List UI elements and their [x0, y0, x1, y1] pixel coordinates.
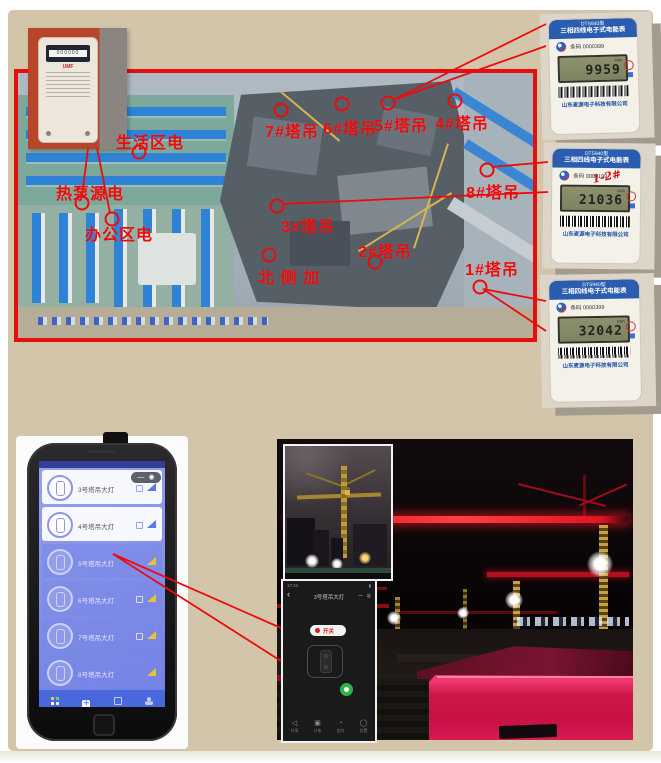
floodlight — [505, 591, 523, 609]
lcd-reading: 21036 — [579, 193, 623, 208]
annotation-crane-8: 8#塔吊 — [466, 179, 520, 203]
inset-crane-photo — [283, 444, 393, 581]
signal-icon — [147, 520, 156, 528]
lcd-reading: 32042 — [579, 324, 623, 340]
toolbar-timer[interactable]: ◔ 定时 — [329, 719, 352, 739]
wall-meter: 000000 UMF — [38, 37, 98, 143]
lamp-socket-icon — [47, 475, 73, 501]
lamp-socket-icon — [47, 549, 73, 575]
settings-icon: ◯ — [352, 719, 375, 728]
energy-meter: DTS940型 三相四线电子式电能表 条码 0000199 1-2# kWh 2… — [550, 148, 641, 265]
grid-icon — [51, 697, 59, 705]
meter-serial: 条码 0000399 — [570, 42, 604, 51]
phone-home-button[interactable] — [93, 714, 115, 736]
brand-logo-icon — [556, 42, 566, 52]
power-toggle-button[interactable]: 开关 — [310, 625, 346, 636]
marker-crane-5 — [381, 96, 396, 111]
toolbar-label: 计电 — [306, 728, 329, 733]
battery-icon — [136, 596, 143, 603]
confirm-button[interactable] — [340, 683, 353, 696]
wall-meter-photo: 000000 UMF — [28, 28, 127, 149]
structure-edge-highlight — [437, 676, 633, 678]
device-card-label: 8号塔吊大灯 — [78, 669, 114, 679]
minimize-icon[interactable]: — — [358, 593, 363, 599]
power-toggle-label: 开关 — [323, 627, 334, 635]
meter-icon: ▣ — [306, 719, 329, 728]
marker-crane-2 — [368, 255, 383, 270]
device-card-label: 7号塔吊大灯 — [78, 632, 114, 642]
battery-icon — [136, 522, 143, 529]
lcd-display: kWh 9959 — [557, 54, 628, 83]
phone-status-bar — [39, 461, 165, 468]
annotation-crane-3: 3#塔吊 — [281, 213, 335, 237]
seal-icon — [626, 321, 636, 331]
power-dot-icon — [315, 628, 320, 633]
meter-spec-text — [46, 72, 90, 98]
marker-office-area — [105, 212, 120, 227]
toolbar-label: 设置 — [352, 728, 375, 733]
annotation-crane-2: 2#塔吊 — [358, 238, 412, 262]
meter-header: DTS940型 三相四线电子式电能表 — [549, 18, 637, 39]
annotation-office-area-power: 办公区电 — [85, 221, 153, 245]
device-card-4[interactable]: 6号塔吊大灯 — [42, 581, 162, 615]
annotation-crane-5: 5#塔吊 — [374, 112, 428, 136]
device-card-6[interactable]: 8号塔吊大灯 — [42, 655, 162, 689]
energy-meter: DTS940型 三相四线电子式电能表 条码 0000399 kWh 9959 山… — [547, 17, 640, 135]
plus-icon: ＋ — [82, 700, 90, 707]
screw — [46, 131, 51, 136]
marker-living-area — [132, 145, 147, 160]
switch-panel-outline — [307, 645, 343, 678]
brand-logo-icon — [559, 171, 569, 181]
manufacturer-name: 山东麦源电子科技有限公司 — [550, 360, 640, 370]
tab-living-power[interactable]: 生活用电 — [102, 690, 134, 707]
lcd-display: kWh 32042 — [558, 315, 630, 343]
south-road — [18, 307, 533, 338]
meter-display-window: 000000 — [46, 45, 90, 62]
share-icon: ◁ — [283, 719, 306, 728]
device-card-label: 3号塔吊大灯 — [78, 484, 114, 494]
street-light — [305, 554, 319, 568]
miniapp-capsule[interactable]: —◉ — [131, 472, 161, 483]
close-icon[interactable]: ◉ — [148, 474, 154, 481]
marker-crane-1 — [473, 280, 488, 295]
floodlight — [457, 607, 469, 619]
manufacturer-name: 山东麦源电子科技有限公司 — [552, 230, 640, 239]
annotation-crane-1: 1#塔吊 — [465, 256, 519, 280]
energy-meter: DTS940型 三相四线电子式电能表 条码 0000399 kWh 32042 … — [548, 278, 642, 403]
seal-icon — [626, 191, 636, 201]
device-card-label: 5号塔吊大灯 — [78, 558, 114, 568]
meter-register-digits: 000000 — [49, 50, 87, 57]
meter-type: 三相四线电子式电能表 — [551, 26, 635, 36]
tab-user-center[interactable]: 用户中心 — [134, 690, 166, 707]
toolbar-label: 共享 — [283, 728, 306, 733]
remote-toolbar: ◁ 共享 ▣ 计电 ◔ 定时 ◯ 设置 — [283, 719, 375, 739]
floodlight — [387, 611, 401, 625]
annotation-living-area-power: 生活区电 — [116, 129, 184, 153]
street-light — [359, 552, 371, 564]
crane-cab — [345, 490, 350, 495]
remote-app-screenshot: 17:41 ▮ ‹ 3号塔吊大灯 — ◎ 开关 ◁ 共享 ▣ 计电 ◔ 定时 — [281, 579, 377, 743]
crane-apex — [583, 475, 586, 521]
distant-building-lights — [517, 617, 629, 626]
device-card-label: 6号塔吊大灯 — [78, 595, 114, 605]
distant-red-strip — [397, 611, 557, 614]
annotation-north-side: 北 侧 加 — [258, 264, 320, 288]
signal-icon — [147, 594, 156, 602]
device-card-5[interactable]: 7号塔吊大灯 — [42, 618, 162, 652]
toolbar-meter[interactable]: ▣ 计电 — [306, 719, 329, 739]
brand-logo-icon — [556, 303, 566, 313]
minimize-icon[interactable]: — — [137, 474, 144, 481]
marker-north-side — [262, 248, 277, 263]
signal-icon — [147, 668, 156, 676]
marker-heat-pump — [75, 196, 90, 211]
lamp-socket-icon — [47, 623, 73, 649]
meter-serial: 条码 0000399 — [570, 303, 604, 312]
marker-crane-7 — [274, 103, 289, 118]
signal-icon — [147, 483, 156, 491]
toolbar-settings[interactable]: ◯ 设置 — [352, 719, 375, 739]
seal-icon — [624, 60, 634, 70]
floodlight — [587, 551, 613, 577]
tab-device-list[interactable]: 设备列表 — [39, 690, 71, 707]
marker-crane-4 — [448, 94, 463, 109]
handwritten-note: 1-2# — [591, 167, 622, 185]
battery-icon — [136, 633, 143, 640]
device-card-2[interactable]: 4号塔吊大灯 — [42, 507, 162, 541]
meter-brand-label: UMF — [39, 64, 97, 70]
bottom-tab-bar: 设备列表 ＋ 添加设备 生活用电 用户中心 — [39, 690, 165, 707]
lcd-reading: 9959 — [585, 62, 621, 78]
page-edge-shadow — [0, 751, 661, 763]
annotation-crane-4: 4#塔吊 — [435, 110, 489, 134]
barcode — [558, 85, 628, 98]
annotation-heat-pump-power: 热泵源电 — [56, 180, 124, 204]
marker-crane-8 — [480, 163, 495, 178]
timer-icon: ◔ — [329, 719, 352, 728]
lamp-socket-icon — [47, 512, 73, 538]
meter-button — [630, 333, 635, 338]
tab-add-device[interactable]: ＋ 添加设备 — [71, 690, 103, 707]
marker-crane-6 — [335, 97, 350, 112]
barcode — [560, 216, 630, 228]
energy-meter-photo-2: DTS940型 三相四线电子式电能表 条码 0000199 1-2# kWh 2… — [542, 142, 655, 269]
meter-header: DTS940型 三相四线电子式电能表 — [552, 149, 640, 169]
energy-meter-photo-1: DTS940型 三相四线电子式电能表 条码 0000399 kWh 9959 山… — [539, 12, 654, 141]
toolbar-share[interactable]: ◁ 共享 — [283, 719, 306, 739]
calendar-icon — [114, 697, 122, 705]
meter-header: DTS940型 三相四线电子式电能表 — [549, 279, 639, 300]
pit-patch — [337, 166, 433, 235]
lamp-socket-icon — [47, 586, 73, 612]
lamp-socket-icon — [47, 660, 73, 686]
remote-status-time: 17:41 — [287, 583, 298, 588]
dark-sign — [499, 724, 557, 739]
remote-status-icons: ▮ — [369, 583, 371, 588]
toolbar-label: 定时 — [329, 728, 352, 733]
screw — [85, 131, 90, 136]
rocker-switch[interactable] — [320, 650, 332, 673]
signal-icon — [147, 557, 156, 565]
annotation-crane-7: 7#塔吊 — [265, 118, 319, 142]
barcode — [558, 346, 630, 358]
battery-icon — [136, 485, 143, 492]
marker-crane-3 — [270, 199, 285, 214]
signal-icon — [147, 631, 156, 639]
device-card-3[interactable]: 5号塔吊大灯 — [42, 544, 162, 578]
meter-type: 三相四线电子式电能表 — [554, 157, 638, 166]
device-card-label: 4号塔吊大灯 — [78, 521, 114, 531]
annotation-crane-6: 6#塔吊 — [323, 115, 377, 139]
energy-meter-photo-3: DTS940型 三相四线电子式电能表 条码 0000399 kWh 32042 … — [540, 273, 656, 408]
manufacturer-name: 山东麦源电子科技有限公司 — [551, 99, 639, 109]
figure-page: 000000 UMF 生活区电 热泵源电 办公区电 7#塔吊 6#塔吊 5#塔吊… — [0, 0, 661, 763]
more-icon[interactable]: ◎ — [367, 593, 371, 599]
user-icon — [145, 697, 153, 705]
lcd-display: kWh 21036 — [560, 185, 630, 213]
meter-button — [628, 72, 633, 77]
app-screen: —◉ 3号塔吊大灯 4号塔吊大灯 5号塔吊大灯 6号塔吊大灯 7号塔吊大 — [39, 461, 165, 707]
meter-type: 三相四线电子式电能表 — [551, 287, 637, 296]
parked-trucks-row — [38, 317, 268, 325]
phone-speaker — [88, 450, 116, 453]
meter-button — [630, 203, 635, 208]
